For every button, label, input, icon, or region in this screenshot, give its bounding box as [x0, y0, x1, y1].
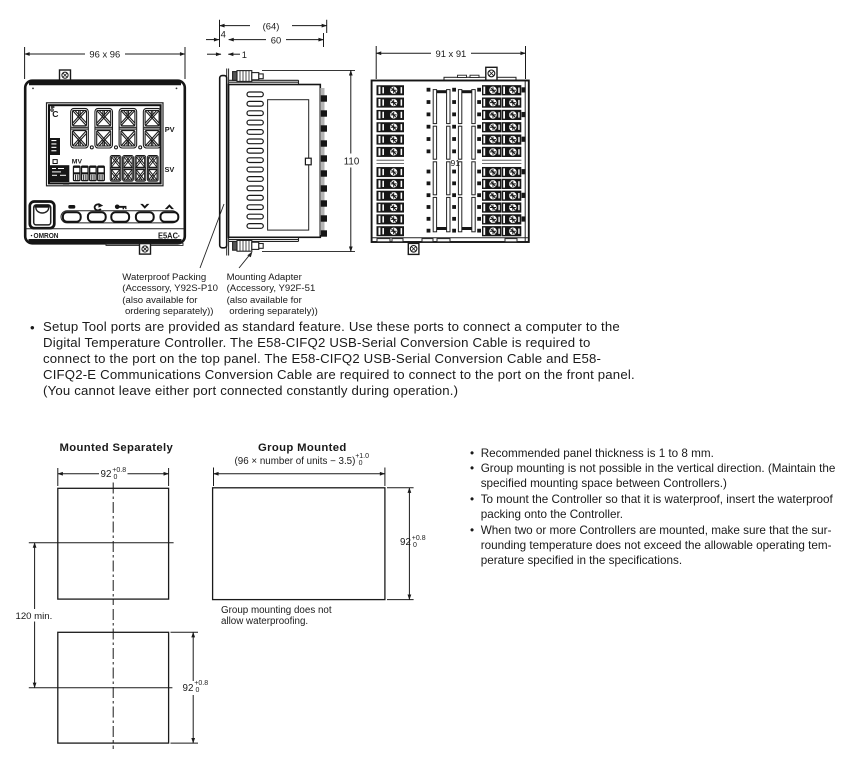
svg-text:SV: SV	[165, 165, 175, 174]
svg-text:MV: MV	[72, 159, 83, 166]
svg-text:OMRON: OMRON	[34, 231, 59, 240]
svg-text:91 x 91: 91 x 91	[436, 48, 467, 59]
svg-text:PV: PV	[165, 125, 175, 134]
svg-text:96 x 96: 96 x 96	[89, 49, 120, 60]
svg-text:60: 60	[271, 34, 281, 45]
svg-text:1: 1	[242, 49, 247, 60]
svg-text:4: 4	[221, 29, 226, 40]
svg-text:110: 110	[344, 157, 360, 168]
svg-text:91: 91	[451, 158, 461, 168]
svg-text:(64): (64)	[263, 20, 280, 31]
svg-text:C: C	[52, 109, 58, 119]
